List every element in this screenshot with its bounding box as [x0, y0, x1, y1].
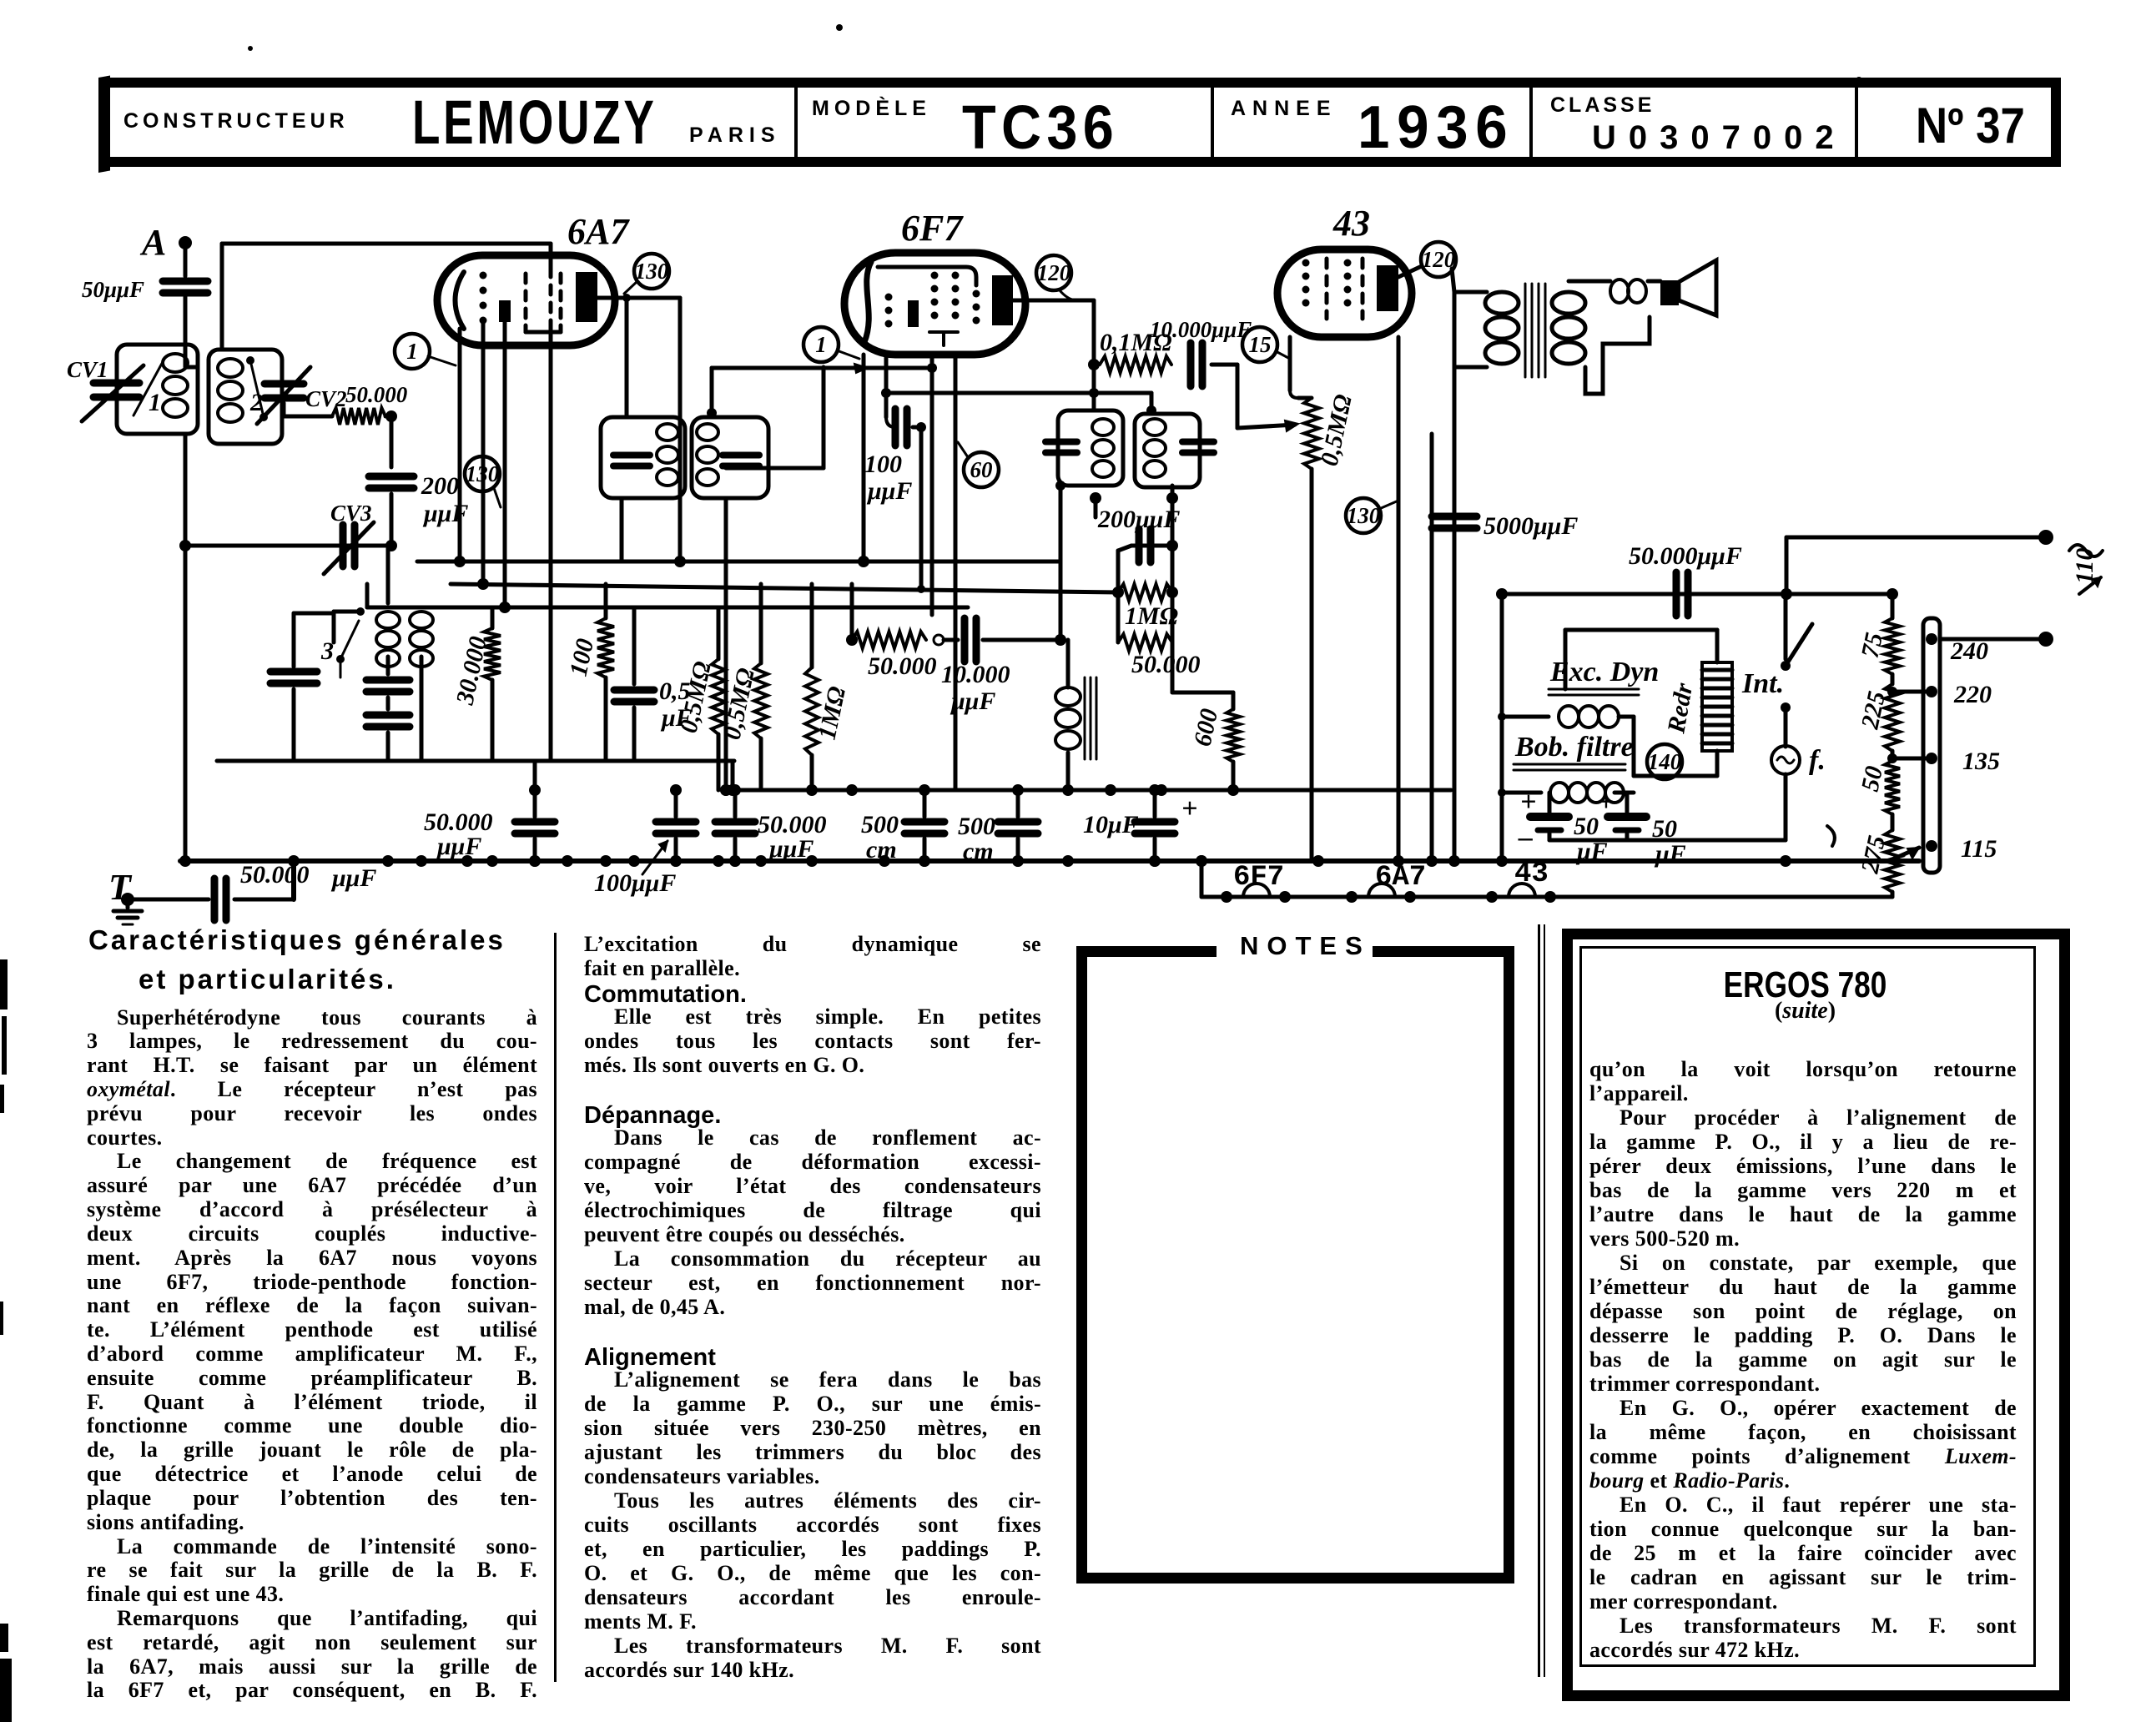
svg-text:100μμF: 100μμF	[594, 869, 676, 897]
svg-text:50.000μμF: 50.000μμF	[1629, 542, 1742, 570]
svg-text:50.000: 50.000	[868, 652, 937, 680]
svg-text:1: 1	[815, 332, 827, 357]
svg-text:cm: cm	[963, 838, 994, 865]
svg-text:1: 1	[149, 389, 161, 416]
svg-text:50.000: 50.000	[1131, 651, 1201, 678]
svg-text:200μμF: 200μμF	[1097, 506, 1180, 533]
svg-text:100: 100	[864, 451, 902, 478]
svg-text:f.: f.	[1809, 745, 1826, 776]
svg-text:–: –	[1518, 822, 1533, 853]
svg-text:Int.: Int.	[1741, 668, 1784, 699]
svg-text:Bob. filtre: Bob. filtre	[1514, 732, 1634, 763]
svg-text:0,5MΩ: 0,5MΩ	[1316, 392, 1358, 469]
svg-text:15: 15	[1249, 332, 1272, 357]
svg-text:500: 500	[958, 813, 995, 840]
svg-text:200: 200	[421, 472, 459, 500]
svg-text:115: 115	[1961, 835, 1997, 863]
svg-text:μμF: μμF	[436, 833, 481, 860]
svg-text:μμF: μμF	[330, 864, 376, 892]
svg-text:6F7: 6F7	[901, 208, 964, 249]
svg-text:5000μμF: 5000μμF	[1484, 512, 1578, 540]
svg-text:CV2: CV2	[305, 386, 347, 411]
svg-text:135: 135	[1962, 748, 2000, 775]
svg-text:Redr: Redr	[1662, 681, 1698, 736]
svg-text:+: +	[1520, 787, 1536, 818]
svg-text:50: 50	[1574, 813, 1599, 840]
svg-text:100: 100	[565, 637, 600, 679]
svg-text:43: 43	[1332, 203, 1370, 244]
svg-text:A: A	[139, 222, 166, 263]
svg-text:μμF: μμF	[866, 477, 912, 505]
svg-text:240: 240	[1950, 637, 1988, 665]
svg-text:1: 1	[406, 339, 418, 364]
svg-text:6A7: 6A7	[567, 211, 630, 252]
svg-text:6F7: 6F7	[1233, 862, 1284, 894]
svg-text:50μμF: 50μμF	[82, 277, 144, 302]
svg-text:μF: μF	[1654, 840, 1686, 868]
svg-text:600: 600	[1189, 707, 1224, 749]
svg-text:+: +	[1181, 793, 1197, 824]
svg-text:130: 130	[1347, 503, 1381, 528]
svg-text:CV3: CV3	[330, 501, 372, 526]
svg-text:50.000: 50.000	[240, 861, 310, 889]
svg-text:43: 43	[1514, 858, 1549, 890]
svg-text:50: 50	[1856, 763, 1889, 793]
svg-text:60: 60	[970, 457, 994, 482]
svg-text:10.000: 10.000	[941, 661, 1010, 688]
svg-text:+: +	[1598, 787, 1614, 818]
svg-text:10μF: 10μF	[1083, 811, 1139, 838]
svg-text:140: 140	[1648, 749, 1682, 774]
svg-text:–: –	[1595, 822, 1610, 853]
svg-text:220: 220	[1953, 681, 1992, 708]
svg-text:130: 130	[635, 259, 669, 284]
svg-text:1MΩ: 1MΩ	[1125, 602, 1178, 630]
svg-text:120: 120	[1037, 260, 1071, 285]
svg-text:6A7: 6A7	[1375, 862, 1426, 894]
svg-text:10.000μμF: 10.000μμF	[1150, 317, 1252, 342]
svg-text:CV1: CV1	[67, 357, 108, 382]
svg-text:50.000: 50.000	[345, 382, 408, 407]
svg-text:75: 75	[1856, 630, 1889, 660]
svg-text:500: 500	[861, 811, 899, 838]
